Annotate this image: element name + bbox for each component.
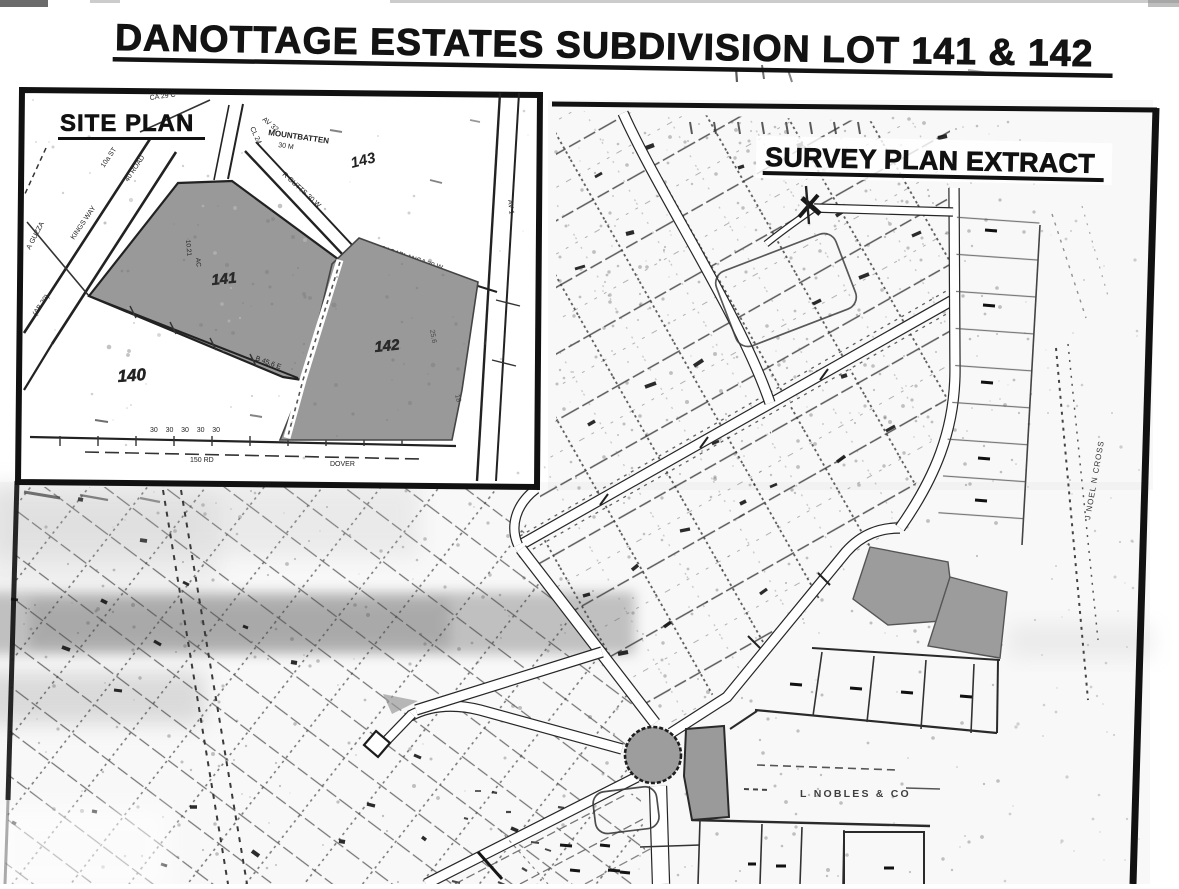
- svg-text:142: 142: [374, 336, 401, 356]
- svg-text:30 30 30 30 30: 30 30 30 30 30: [150, 427, 220, 434]
- svg-text:AC: AC: [194, 258, 202, 268]
- svg-text:10.21: 10.21: [184, 240, 192, 257]
- svg-text:DOVER: DOVER: [330, 461, 355, 468]
- svg-text:140: 140: [117, 365, 147, 386]
- svg-text:L NOBLES & CO: L NOBLES & CO: [800, 788, 911, 800]
- svg-text:150 RD: 150 RD: [190, 457, 214, 464]
- svg-text:141: 141: [211, 269, 238, 289]
- svg-text:SITE PLAN: SITE PLAN: [60, 110, 194, 137]
